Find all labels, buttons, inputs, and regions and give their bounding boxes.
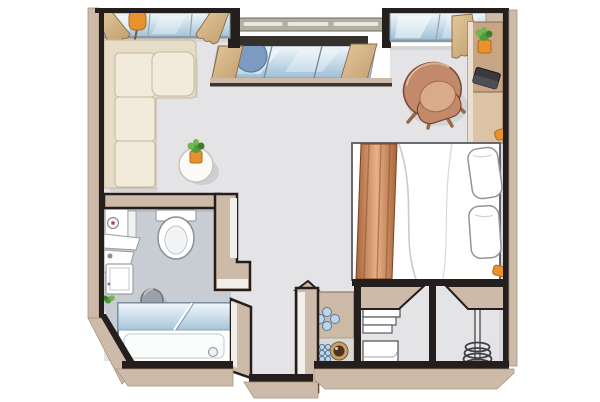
bath-corner-wall-face	[217, 279, 248, 288]
double-bed	[352, 127, 510, 284]
wall-east	[503, 8, 509, 369]
desk-edge-highlight	[468, 22, 473, 143]
outer-band-east	[509, 10, 517, 366]
railing-slat	[243, 22, 283, 27]
pillow	[468, 205, 502, 259]
balcony-parapet	[238, 36, 368, 46]
tub-drain	[209, 348, 218, 357]
coffee-highlight	[335, 347, 338, 350]
desk-wardrobe	[468, 22, 503, 143]
toilet-bowl-inner	[165, 226, 187, 254]
plant-pot	[478, 40, 491, 53]
plant-leaves	[481, 27, 487, 33]
plant-leaves	[193, 139, 199, 145]
coffee-machine	[330, 342, 348, 360]
balcony-sill-edge	[210, 83, 392, 87]
espresso-cups	[319, 344, 330, 361]
vanity-cabinet	[106, 264, 133, 294]
tub-side-wall-face	[231, 301, 237, 368]
floor-plan-image	[0, 0, 600, 402]
kitchenette	[316, 292, 355, 362]
wall-north-east	[382, 8, 509, 13]
glass-cup	[323, 308, 332, 317]
lamp-shade	[129, 11, 146, 30]
shelf-slab	[363, 317, 396, 325]
faucet	[108, 254, 113, 259]
toilet	[156, 210, 196, 259]
sofa-cushion	[115, 97, 155, 141]
pillow	[467, 146, 504, 200]
heater-panel	[128, 211, 136, 238]
outer-band-west	[88, 8, 99, 318]
shelf-slab	[363, 325, 392, 333]
outer-band-south-tub	[116, 369, 233, 386]
cabinet-handle	[108, 283, 111, 286]
niche-wall	[354, 283, 361, 369]
bed-runner	[356, 144, 397, 279]
shelf-lower	[363, 341, 398, 363]
sofa-cushion	[115, 141, 155, 187]
outer-band-south-entry	[314, 369, 514, 389]
floor-plan-canvas	[0, 0, 600, 402]
sofa-cushion	[152, 52, 194, 96]
balcony	[210, 8, 392, 87]
railing-slat	[287, 22, 329, 27]
niche-wall	[429, 285, 436, 369]
glass-cup	[323, 322, 332, 331]
bath-corner-wall-face	[230, 198, 237, 258]
outer-band-south-passage	[244, 382, 318, 398]
glass-cup	[331, 315, 340, 324]
bath-divider-wall	[104, 194, 220, 208]
hall-divider-wall	[352, 279, 509, 286]
heater-dial-dot	[111, 221, 115, 225]
wall-south-entry	[314, 361, 509, 369]
shower-glass-screen	[118, 303, 231, 330]
bathtub	[118, 303, 231, 363]
railing-slat	[333, 22, 379, 27]
wall-south-tub	[122, 361, 233, 369]
wall-west	[99, 8, 104, 318]
sofa-cushion	[115, 53, 155, 97]
wall-north-west	[95, 8, 232, 13]
coffee-center	[334, 346, 345, 357]
wall-south-passage	[249, 374, 313, 382]
